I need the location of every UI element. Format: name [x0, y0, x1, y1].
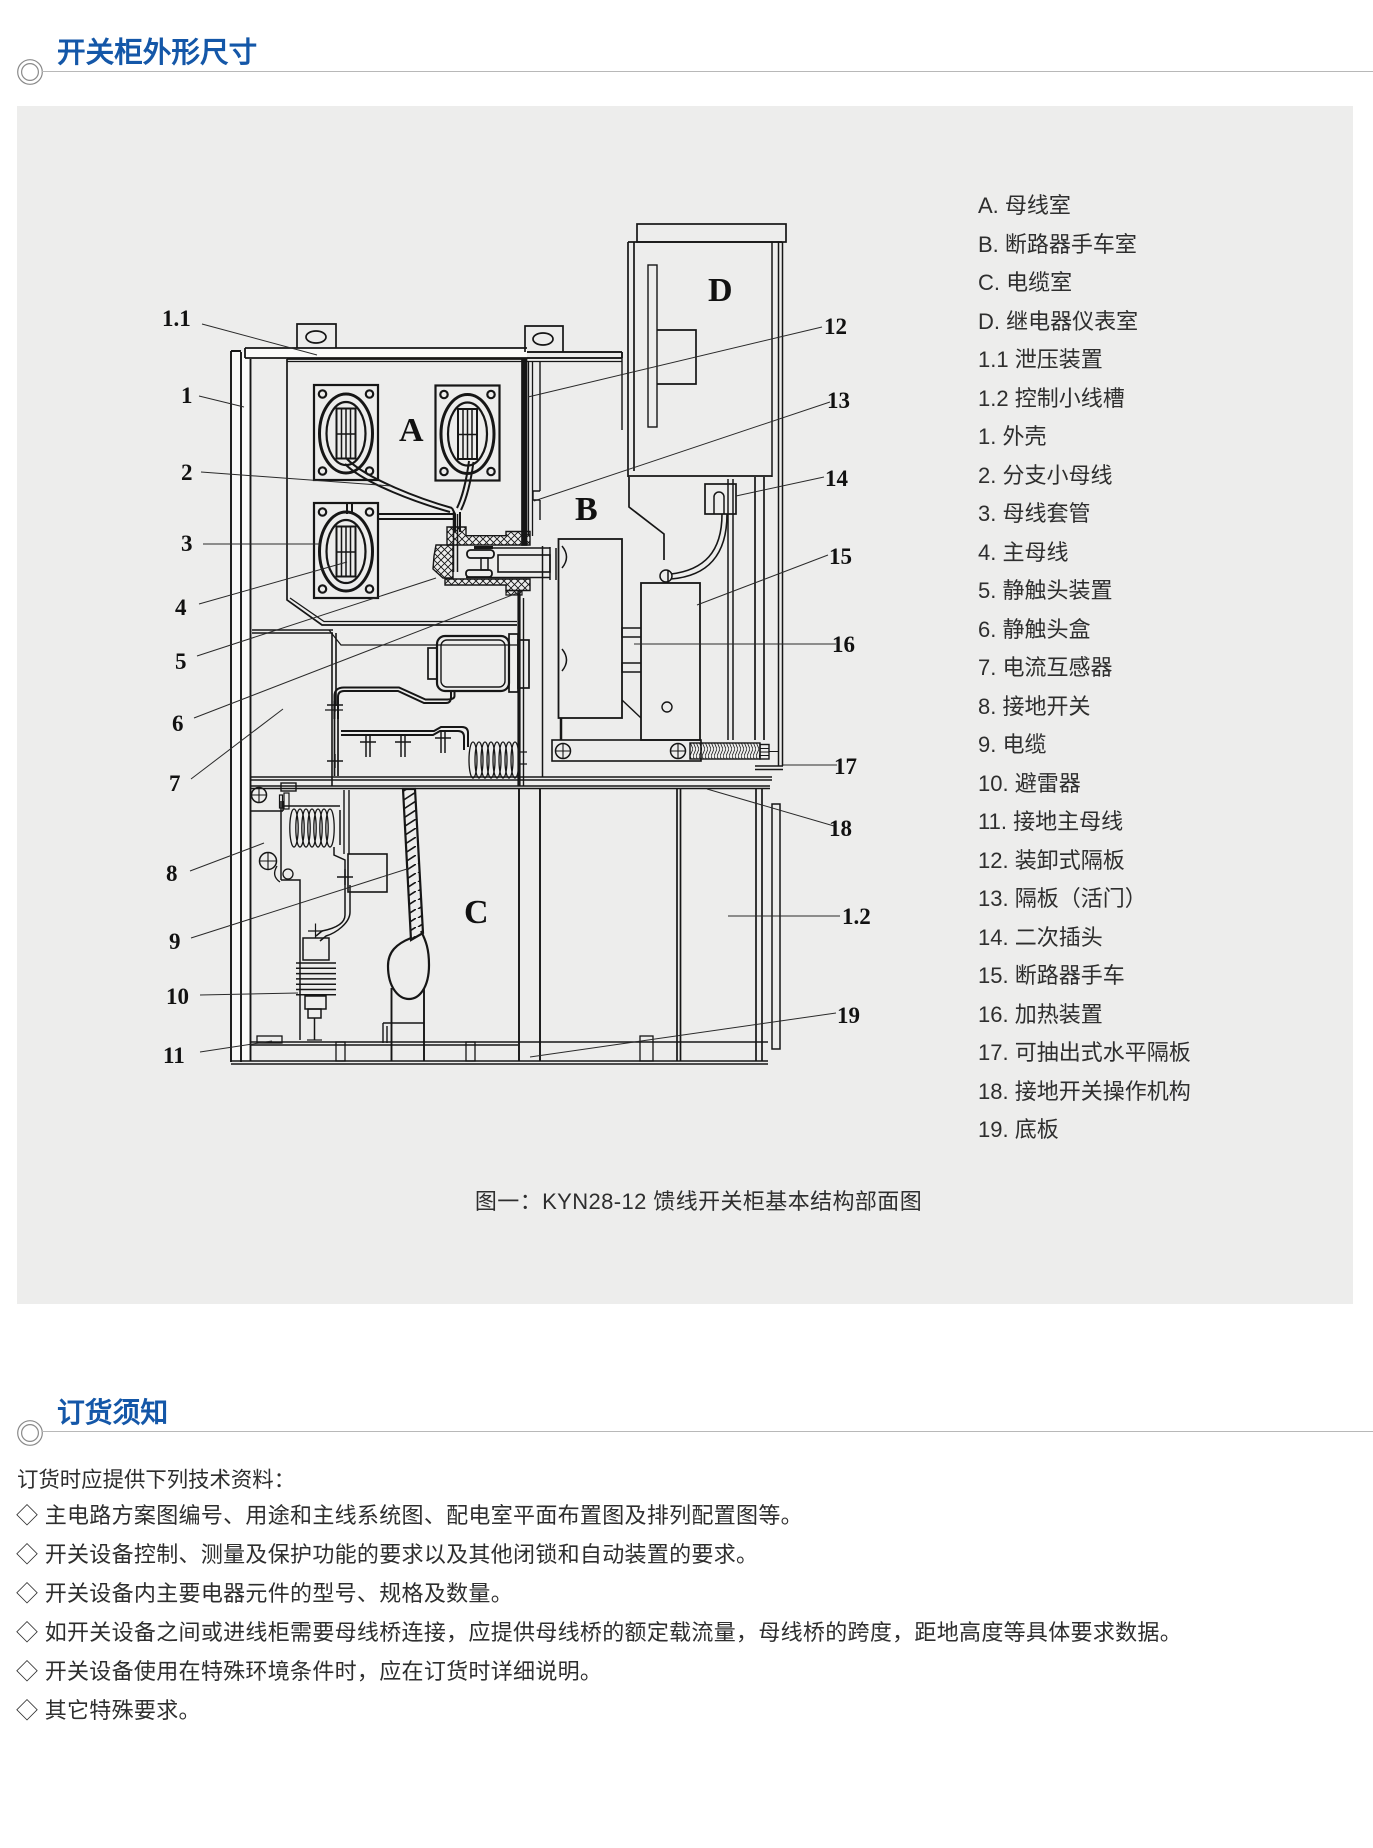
- svg-text:9: 9: [169, 929, 181, 954]
- svg-text:1.2: 1.2: [842, 904, 871, 929]
- svg-text:A: A: [399, 412, 424, 449]
- svg-text:13: 13: [827, 388, 850, 413]
- svg-text:6: 6: [172, 711, 184, 736]
- svg-text:1: 1: [181, 383, 193, 408]
- svg-text:1.1: 1.1: [162, 306, 191, 331]
- svg-text:7: 7: [169, 771, 181, 796]
- svg-text:B: B: [575, 491, 598, 528]
- svg-text:10: 10: [166, 984, 189, 1009]
- svg-text:18: 18: [829, 816, 852, 841]
- svg-text:12: 12: [824, 314, 847, 339]
- svg-text:16: 16: [832, 632, 855, 657]
- svg-text:17: 17: [834, 754, 857, 779]
- svg-text:15: 15: [829, 544, 852, 569]
- svg-text:19: 19: [837, 1003, 860, 1028]
- svg-text:8: 8: [166, 861, 178, 886]
- svg-text:C: C: [464, 894, 489, 931]
- svg-text:4: 4: [175, 595, 187, 620]
- svg-text:3: 3: [181, 531, 193, 556]
- svg-text:2: 2: [181, 460, 193, 485]
- svg-text:14: 14: [825, 466, 849, 491]
- svg-text:11: 11: [163, 1043, 185, 1068]
- svg-text:5: 5: [175, 649, 187, 674]
- svg-text:D: D: [708, 272, 733, 309]
